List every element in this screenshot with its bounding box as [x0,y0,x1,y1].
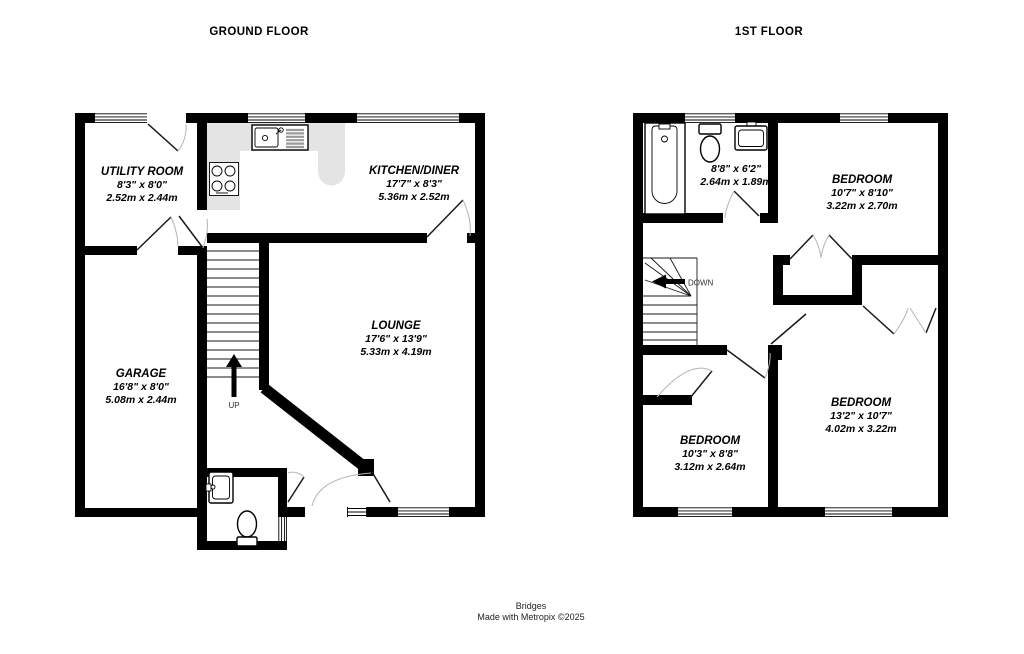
room-dims-metric: 5.36m x 2.52m [378,191,449,203]
ground-floor-plan: UTILITY ROOM 8'3" x 8'0" 2.52m x 2.44m K… [75,113,485,550]
up-arrow-icon [226,354,242,397]
room-dims-imperial: 13'2" x 10'7" [830,410,893,422]
bathtub-icon [645,123,685,214]
room-label-bedroom3: BEDROOM 10'3" x 8'8" 3.12m x 2.64m [674,435,745,473]
room-dims-imperial: 17'6" x 13'9" [365,333,428,345]
kitchen-sink-icon [252,125,308,150]
room-label-kitchen: KITCHEN/DINER 17'7" x 8'3" 5.36m x 2.52m [369,165,460,203]
room-label-bathroom: 8'8" x 6'2" 2.64m x 1.89m [699,163,771,188]
footer-company: Bridges [516,601,547,611]
room-dims-metric: 2.52m x 2.44m [105,192,177,204]
bathroom-door [725,191,759,218]
stove-icon [210,163,239,196]
kitchen-hall-door [179,216,208,248]
room-dims-imperial: 17'7" x 8'3" [386,178,443,190]
wc-door [288,472,304,502]
toilet-icon [237,511,257,546]
landing-door [727,350,770,378]
bathroom-sink-icon [735,122,767,150]
toilet-icon [699,124,721,162]
bedroom2-door [771,314,806,344]
room-dims-imperial: 10'3" x 8'8" [682,448,739,460]
room-name: UTILITY ROOM [101,166,184,178]
room-name: LOUNGE [371,320,421,332]
room-name: GARAGE [116,368,167,380]
first-floor-title: 1ST FLOOR [735,26,803,38]
floorplan-page: GROUND FLOOR 1ST FLOOR [0,0,1024,654]
room-label-garage: GARAGE 16'8" x 8'0" 5.08m x 2.44m [105,368,176,406]
room-name: BEDROOM [680,435,740,447]
utility-entrance-door [148,124,186,151]
room-dims-imperial: 10'7" x 8'10" [831,187,894,199]
up-label: UP [228,401,239,410]
room-name: KITCHEN/DINER [369,165,460,177]
down-label: DOWN [688,279,714,288]
stairs-down [643,258,697,345]
ground-floor-title: GROUND FLOOR [209,26,309,38]
bedroom2-double-door [863,306,936,334]
utility-hall-door [137,217,178,250]
room-name: BEDROOM [832,174,892,186]
cupboard-double-door [790,235,852,259]
floorplan-canvas: GROUND FLOOR 1ST FLOOR [0,0,1024,654]
stairs-up [207,251,259,397]
room-dims-imperial: 8'3" x 8'0" [117,179,168,191]
footer-credit: Made with Metropix ©2025 [477,612,584,622]
wc-sink-icon [206,472,233,503]
first-floor-plan: 8'8" x 6'2" 2.64m x 1.89m BEDROOM 10'7" … [633,113,948,517]
front-door [312,472,390,506]
room-dims-metric: 5.08m x 2.44m [105,394,176,406]
room-dims-metric: 4.02m x 3.22m [824,423,896,435]
footer: Bridges Made with Metropix ©2025 [477,601,584,622]
room-dims-imperial: 16'8" x 8'0" [113,381,170,393]
room-label-utility: UTILITY ROOM 8'3" x 8'0" 2.52m x 2.44m [101,166,184,204]
room-dims-imperial: 8'8" x 6'2" [711,163,762,175]
room-label-lounge: LOUNGE 17'6" x 13'9" 5.33m x 4.19m [360,320,431,358]
room-label-bedroom1: BEDROOM 10'7" x 8'10" 3.22m x 2.70m [826,174,897,212]
room-dims-metric: 2.64m x 1.89m [699,176,771,188]
room-dims-metric: 3.22m x 2.70m [826,200,897,212]
bedroom3-door [657,368,712,398]
room-dims-metric: 5.33m x 4.19m [360,346,431,358]
room-label-bedroom2: BEDROOM 13'2" x 10'7" 4.02m x 3.22m [824,397,896,435]
room-dims-metric: 3.12m x 2.64m [674,461,745,473]
room-name: BEDROOM [831,397,891,409]
lounge-door [427,200,470,237]
